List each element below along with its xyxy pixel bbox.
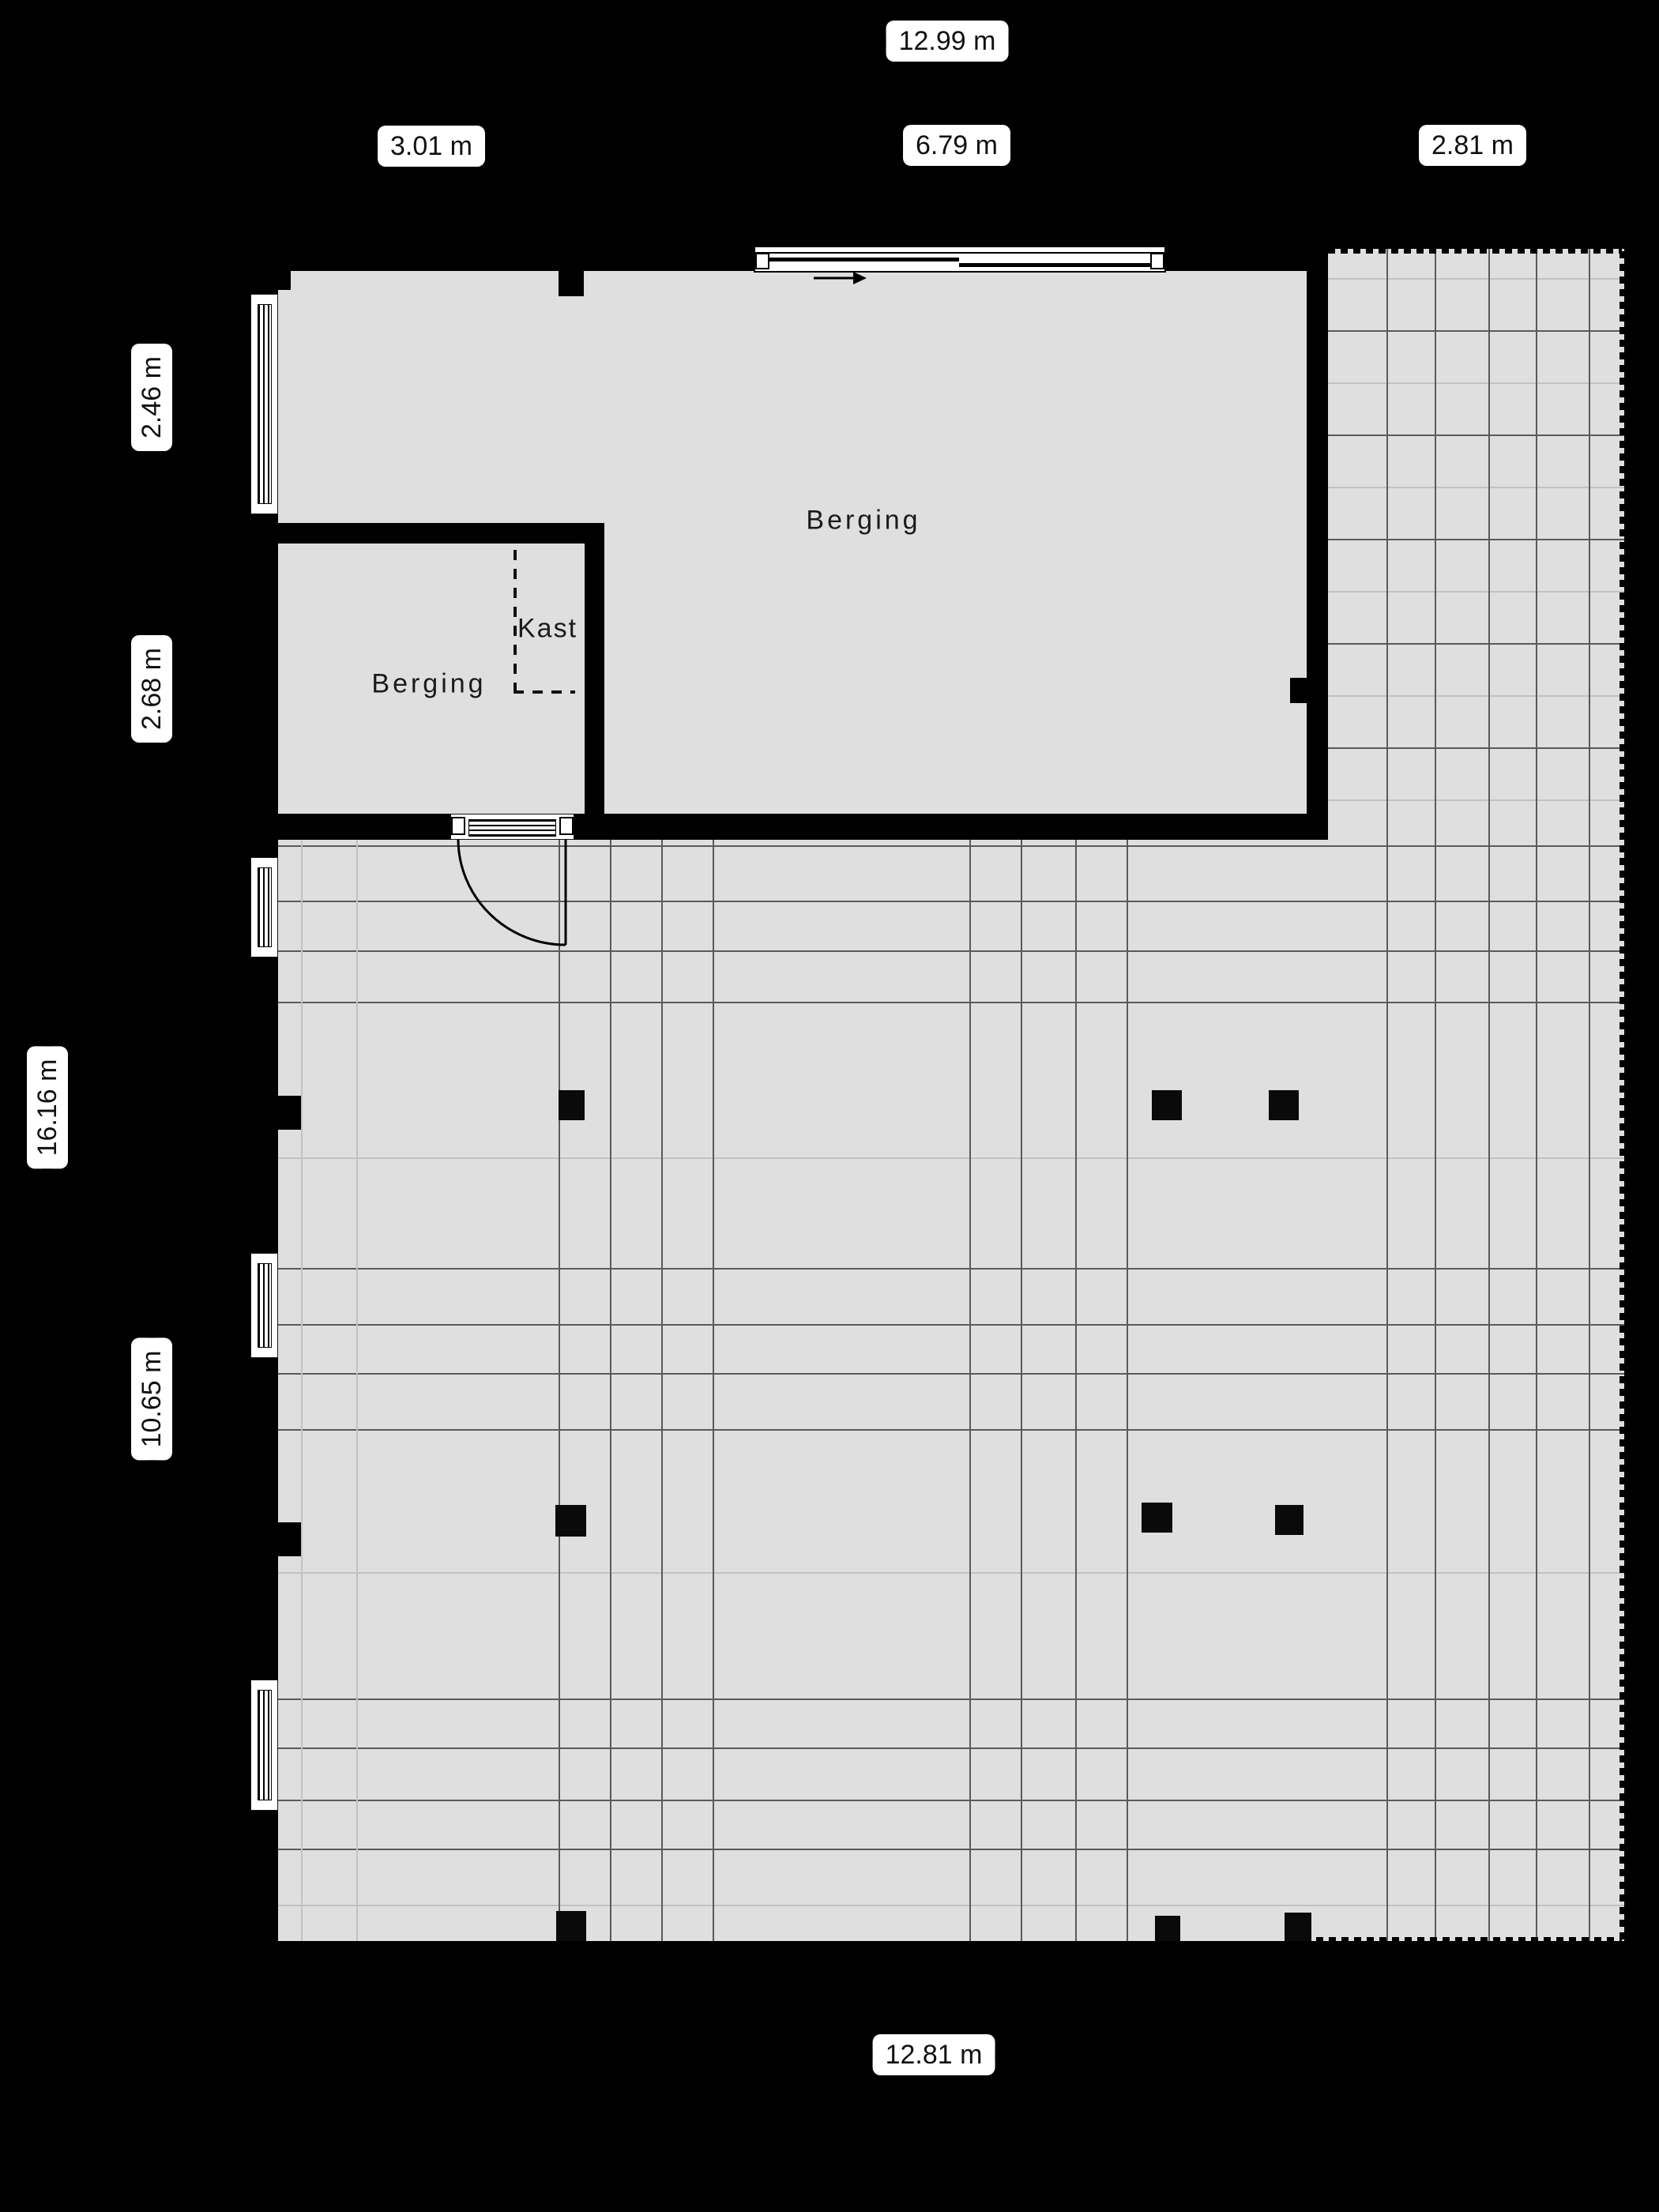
window-glazing-lines <box>258 1690 272 1800</box>
grid-line-horizontal <box>278 1268 1624 1270</box>
grid-line-vertical <box>356 840 358 1941</box>
grid-line-vertical <box>559 840 560 1941</box>
dimension-top-left: 3.01 m <box>378 126 485 167</box>
grid-line-horizontal <box>1328 747 1624 749</box>
dimension-side-middle: 2.68 m <box>131 635 172 743</box>
grid-line-horizontal <box>278 1698 1624 1700</box>
hinged-door-leaf-lines <box>468 819 556 837</box>
grid-line-horizontal <box>1328 695 1624 697</box>
dimension-top-right: 2.81 m <box>1419 125 1526 166</box>
grid-line-vertical <box>1435 249 1436 1941</box>
dimension-top-total: 12.99 m <box>886 21 1009 62</box>
floor-area <box>278 840 1624 1941</box>
wall-segment <box>559 261 584 296</box>
grid-line-vertical <box>969 840 971 1941</box>
grid-line-horizontal <box>278 1572 1624 1574</box>
support-post <box>1269 1090 1299 1120</box>
wall-segment <box>256 814 1328 840</box>
grid-line-vertical <box>1386 249 1388 1941</box>
room-label-kast: Kast <box>517 614 577 645</box>
grid-line-horizontal <box>1328 539 1624 540</box>
grid-line-vertical <box>713 840 714 1941</box>
wall-segment <box>256 1941 1337 1963</box>
sliding-door-symbol <box>754 246 1166 273</box>
grid-line-horizontal <box>278 1324 1624 1326</box>
window-glazing-lines <box>258 304 272 504</box>
hinged-door-symbol <box>450 814 574 840</box>
wall-segment <box>1307 244 1328 840</box>
room-label-berging-large: Berging <box>806 506 920 536</box>
grid-line-horizontal <box>278 1002 1624 1003</box>
wall-segment <box>256 523 603 544</box>
closet-dashed-line-horizontal <box>513 690 575 694</box>
window-glazing-lines <box>258 1263 272 1348</box>
grid-line-vertical <box>1589 249 1590 1941</box>
grid-line-horizontal <box>1328 487 1624 488</box>
sliding-door-jamb-left <box>755 253 769 269</box>
support-post <box>559 1090 585 1120</box>
closet-dashed-line-vertical <box>513 550 517 693</box>
grid-line-horizontal <box>278 901 1624 902</box>
support-post <box>555 1505 586 1537</box>
dimension-bottom-total: 12.81 m <box>873 2034 995 2075</box>
wall-segment <box>585 523 604 840</box>
grid-line-vertical <box>1021 840 1022 1941</box>
sliding-door-panel-left <box>765 258 959 261</box>
support-post <box>1155 1916 1180 1941</box>
wall-segment <box>1290 678 1307 703</box>
grid-line-horizontal <box>1328 591 1624 592</box>
grid-line-vertical <box>661 840 663 1941</box>
support-post <box>1152 1090 1182 1120</box>
grid-line-horizontal <box>1328 382 1624 384</box>
grid-line-horizontal <box>278 1747 1624 1749</box>
wall-segment <box>278 1522 301 1556</box>
floor-area <box>275 271 1307 523</box>
floor-area <box>1328 249 1624 840</box>
grid-line-horizontal <box>1328 799 1624 801</box>
grid-line-horizontal <box>278 1905 1624 1906</box>
grid-line-vertical <box>1488 249 1490 1941</box>
grid-line-horizontal <box>278 845 1624 847</box>
hinged-door-jamb-right <box>559 817 574 835</box>
grid-line-horizontal <box>278 1157 1624 1159</box>
grid-line-horizontal <box>278 1849 1624 1850</box>
support-post <box>1275 1505 1303 1535</box>
sliding-door-panel-right <box>959 263 1158 267</box>
grid-line-horizontal <box>278 1800 1624 1801</box>
support-post <box>556 1911 586 1941</box>
sliding-door-frame-line <box>755 252 1164 254</box>
grid-line-horizontal <box>278 950 1624 952</box>
grid-line-horizontal <box>1328 643 1624 645</box>
grid-line-horizontal <box>1328 434 1624 436</box>
sliding-door-jamb-right <box>1150 253 1164 269</box>
dimension-side-total: 16.16 m <box>27 1047 68 1169</box>
window-symbol <box>250 1253 278 1358</box>
grid-line-vertical <box>301 840 303 1941</box>
grid-line-horizontal <box>1328 278 1624 280</box>
window-symbol <box>250 1680 278 1811</box>
grid-line-vertical <box>610 840 611 1941</box>
grid-line-horizontal <box>1328 330 1624 332</box>
grid-line-horizontal <box>278 1429 1624 1431</box>
dimension-side-lower: 10.65 m <box>131 1338 172 1461</box>
support-post <box>1285 1913 1311 1941</box>
dimension-side-upper: 2.46 m <box>131 344 172 451</box>
window-glazing-lines <box>258 867 272 947</box>
wall-segment <box>278 1096 301 1130</box>
grid-line-vertical <box>1075 840 1077 1941</box>
floor-plan-page: { "floor_plan": { "rooms": { "berging_la… <box>0 0 1659 2212</box>
dimension-top-middle: 6.79 m <box>903 125 1010 166</box>
window-symbol <box>250 294 278 514</box>
hinged-door-jamb-left <box>451 817 465 835</box>
grid-line-horizontal <box>278 1373 1624 1375</box>
window-symbol <box>250 857 278 957</box>
floor-area <box>603 523 1307 814</box>
grid-line-vertical <box>1127 840 1128 1941</box>
grid-line-vertical <box>1536 249 1537 1941</box>
support-post <box>1142 1503 1172 1533</box>
wall-segment <box>275 271 291 290</box>
room-label-berging-small: Berging <box>371 669 486 700</box>
